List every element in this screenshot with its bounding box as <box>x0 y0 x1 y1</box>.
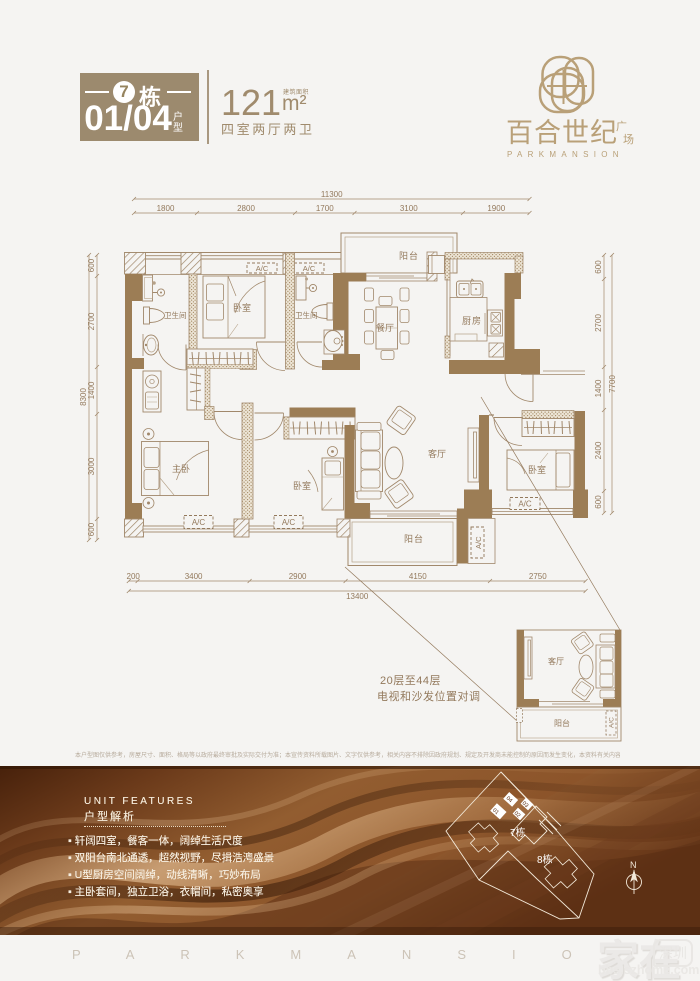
svg-text:2800: 2800 <box>237 204 255 213</box>
svg-text:600: 600 <box>594 260 603 274</box>
svg-text:卧室: 卧室 <box>233 302 251 313</box>
svg-text:1900: 1900 <box>487 204 505 213</box>
svg-text:A/C: A/C <box>303 264 316 273</box>
svg-text:7700: 7700 <box>608 375 617 393</box>
svg-text:2750: 2750 <box>529 572 547 581</box>
svg-text:20层至44层: 20层至44层 <box>380 674 441 687</box>
svg-text:600: 600 <box>87 258 96 272</box>
svg-text:A/C: A/C <box>609 717 616 728</box>
svg-text:客厅: 客厅 <box>548 656 564 666</box>
svg-text:1400: 1400 <box>87 381 96 399</box>
svg-text:600: 600 <box>594 495 603 509</box>
svg-text:3400: 3400 <box>185 572 203 581</box>
svg-text:A/C: A/C <box>192 518 206 527</box>
svg-text:8栋: 8栋 <box>537 853 553 866</box>
svg-text:A/C: A/C <box>256 264 269 273</box>
svg-text:2700: 2700 <box>87 312 96 330</box>
svg-text:200: 200 <box>127 572 141 581</box>
svg-text:阳台: 阳台 <box>404 533 424 544</box>
svg-text:A/C: A/C <box>518 500 532 509</box>
svg-text:2400: 2400 <box>594 441 603 459</box>
svg-text:主卧: 主卧 <box>172 463 190 474</box>
svg-text:8300: 8300 <box>79 388 88 406</box>
svg-text:600: 600 <box>87 522 96 536</box>
svg-text:1700: 1700 <box>316 204 334 213</box>
svg-text:A/C: A/C <box>282 518 296 527</box>
svg-text:1800: 1800 <box>157 204 175 213</box>
svg-text:电视和沙发位置对调: 电视和沙发位置对调 <box>377 689 481 703</box>
svg-text:阳台: 阳台 <box>554 718 570 728</box>
svg-text:阳台: 阳台 <box>399 250 419 261</box>
svg-text:13400: 13400 <box>346 592 369 601</box>
svg-text:2900: 2900 <box>289 572 307 581</box>
svg-text:11300: 11300 <box>321 190 343 199</box>
svg-text:4150: 4150 <box>409 572 427 581</box>
svg-text:餐厅: 餐厅 <box>376 322 394 333</box>
svg-text:3000: 3000 <box>87 457 96 475</box>
svg-text:2700: 2700 <box>594 314 603 332</box>
svg-text:卧室: 卧室 <box>293 480 311 491</box>
svg-text:3100: 3100 <box>400 204 418 213</box>
svg-text:厨房: 厨房 <box>462 315 482 326</box>
svg-text:7栋: 7栋 <box>510 826 526 839</box>
svg-text:N: N <box>630 860 637 870</box>
svg-text:卧室: 卧室 <box>528 464 546 475</box>
svg-text:1400: 1400 <box>594 379 603 397</box>
svg-text:卫生间: 卫生间 <box>295 310 318 320</box>
svg-text:A/C: A/C <box>474 536 483 549</box>
svg-text:卫生间: 卫生间 <box>164 310 187 320</box>
svg-text:客厅: 客厅 <box>428 448 446 459</box>
